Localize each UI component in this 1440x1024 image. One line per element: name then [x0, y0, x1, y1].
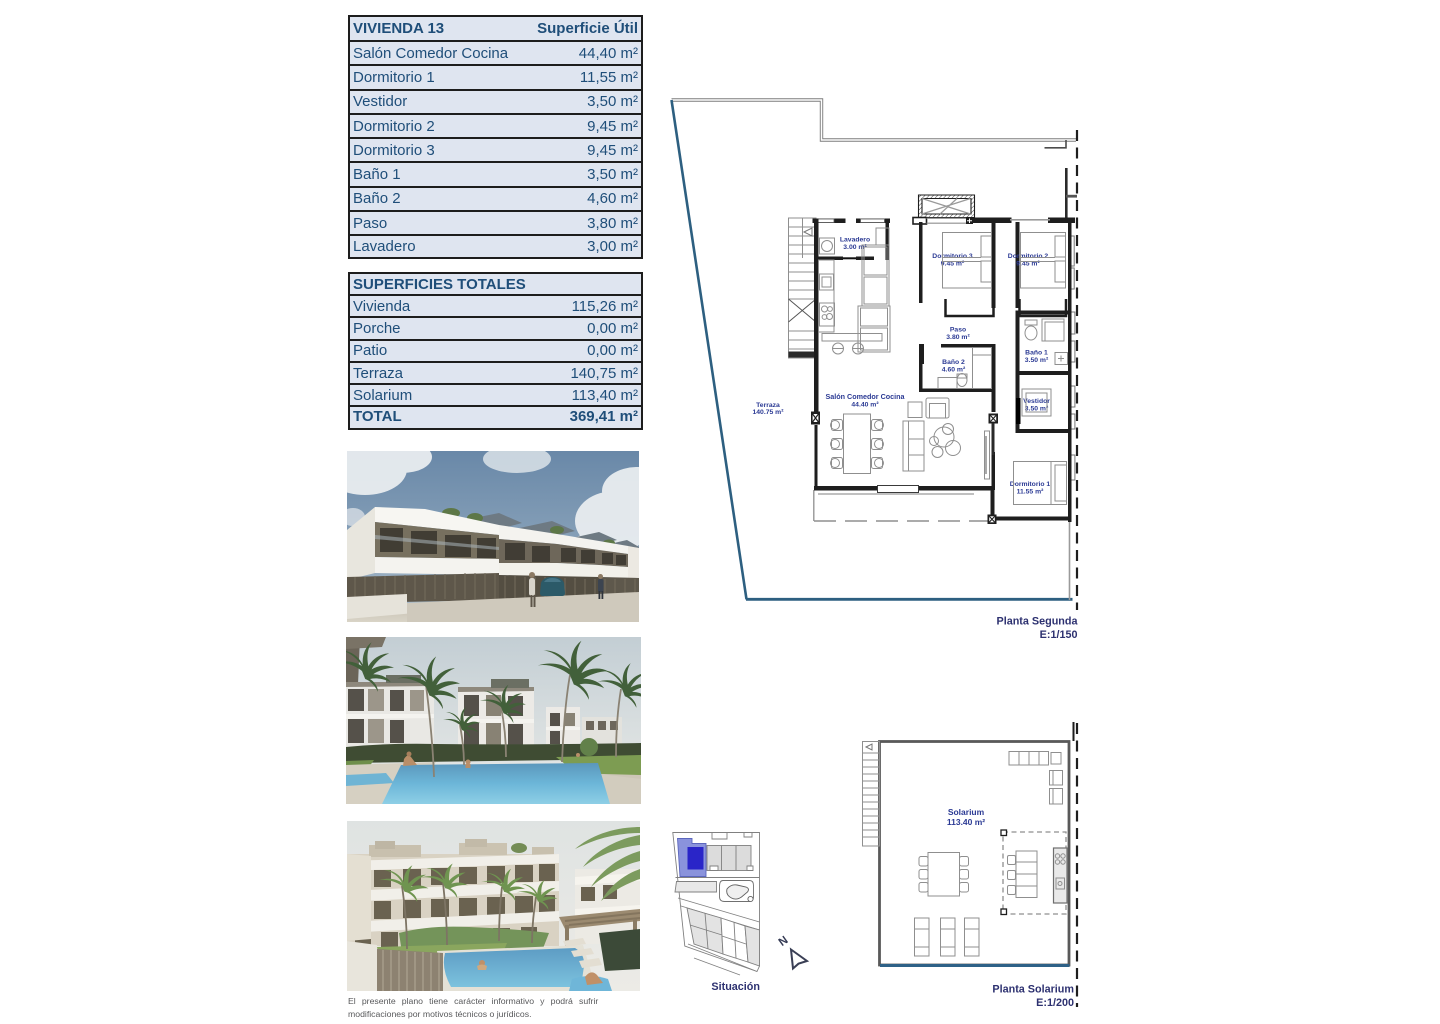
svg-text:Vestidor: Vestidor [1023, 398, 1050, 405]
svg-text:3.80 m²: 3.80 m² [946, 334, 970, 341]
svg-text:113.40 m²: 113.40 m² [947, 817, 985, 827]
svg-text:E:1/200: E:1/200 [1036, 997, 1074, 1009]
svg-text:Baño 2: Baño 2 [942, 359, 965, 366]
svg-text:44.40 m²: 44.40 m² [851, 402, 879, 409]
svg-text:11.55 m²: 11.55 m² [1017, 489, 1045, 496]
svg-text:4.60 m²: 4.60 m² [942, 367, 966, 374]
svg-text:3.50 m²: 3.50 m² [1025, 406, 1049, 413]
svg-text:Salón Comedor Cocina: Salón Comedor Cocina [825, 392, 905, 401]
svg-text:Dormitorio 2: Dormitorio 2 [1008, 253, 1049, 260]
svg-text:Dormitorio 1: Dormitorio 1 [1010, 481, 1051, 488]
svg-text:Terraza: Terraza [756, 402, 780, 409]
svg-text:Baño 1: Baño 1 [1025, 350, 1048, 357]
svg-text:N: N [777, 934, 791, 949]
svg-text:Dormitorio 3: Dormitorio 3 [932, 253, 973, 260]
svg-text:140.75 m²: 140.75 m² [753, 409, 785, 416]
svg-text:Solarium: Solarium [948, 807, 985, 817]
svg-text:Planta Solarium: Planta Solarium [992, 984, 1074, 996]
svg-text:Lavadero: Lavadero [840, 237, 870, 244]
svg-text:3.50 m²: 3.50 m² [1025, 357, 1049, 364]
svg-text:Paso: Paso [950, 327, 966, 334]
svg-text:Planta Segunda: Planta Segunda [997, 616, 1079, 628]
svg-text:Situación: Situación [711, 981, 760, 993]
svg-text:E:1/150: E:1/150 [1040, 629, 1078, 641]
